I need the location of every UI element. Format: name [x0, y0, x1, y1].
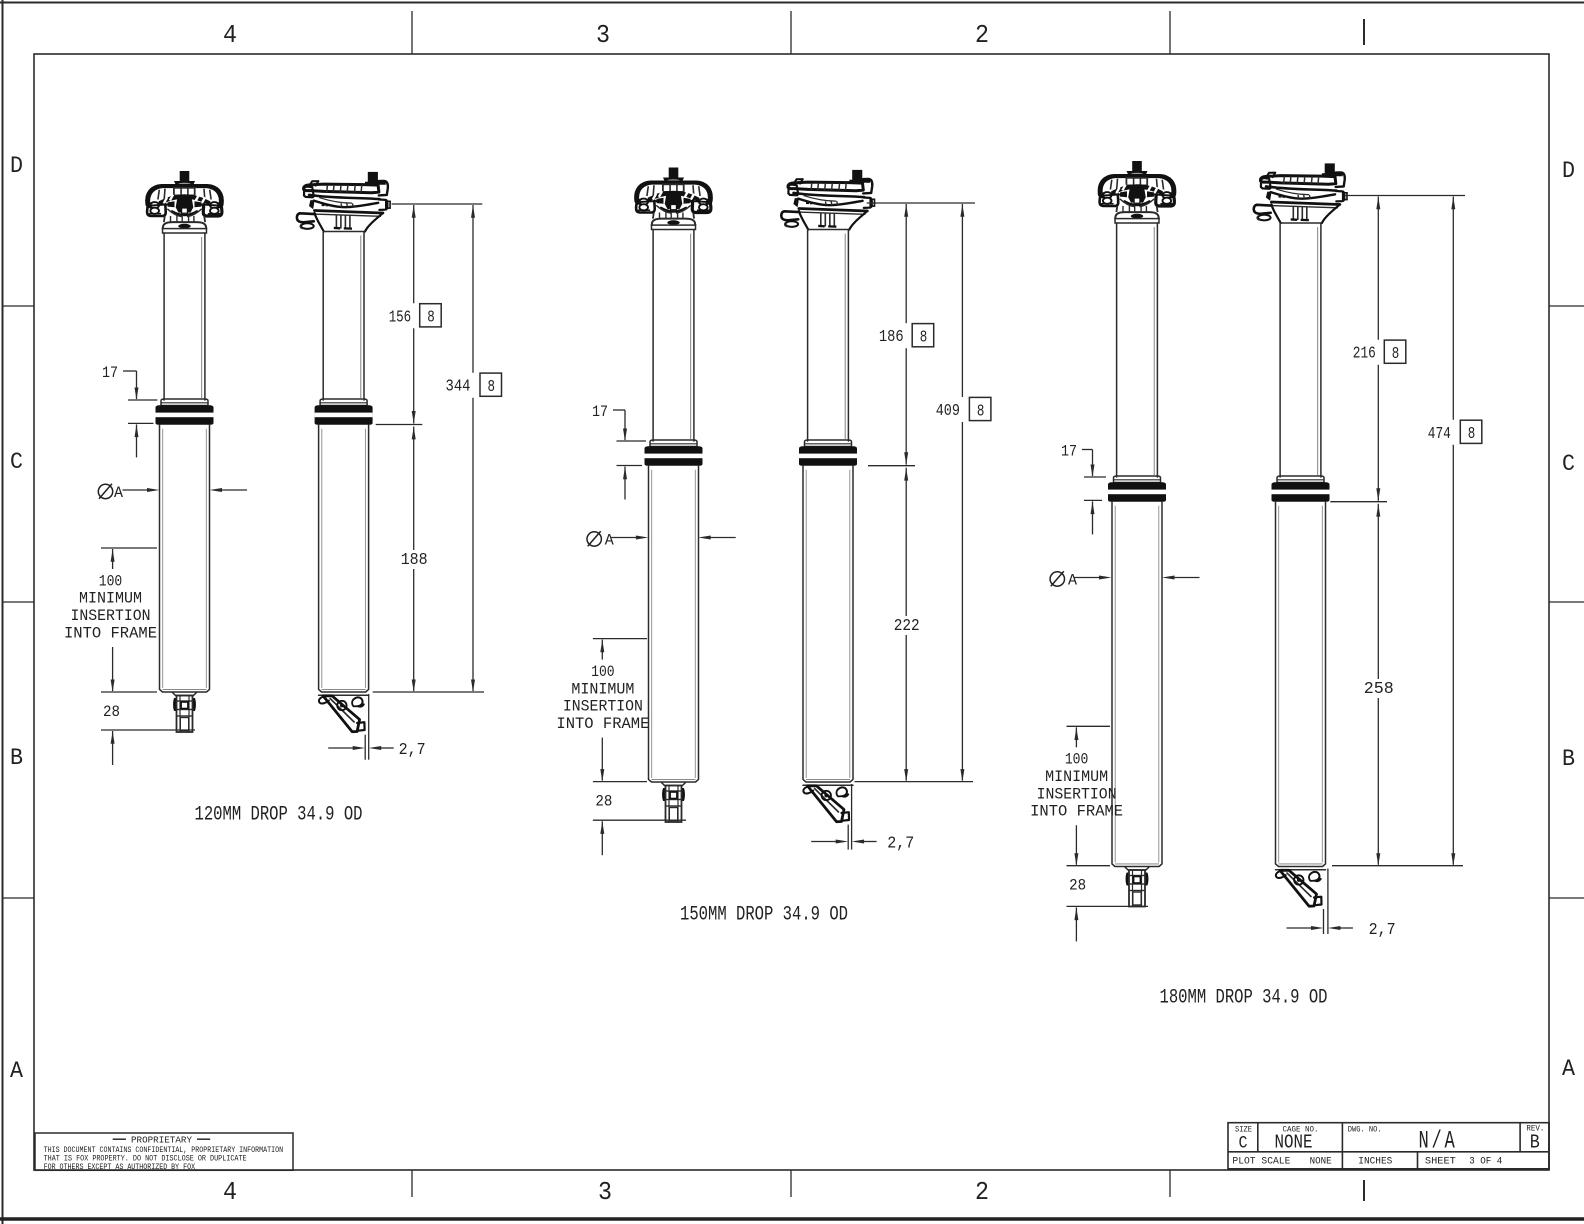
svg-text:100: 100 [1065, 751, 1089, 769]
svg-text:2: 2 [975, 1177, 989, 1207]
svg-text:150MM DROP 34.9 OD: 150MM DROP 34.9 OD [680, 904, 848, 927]
svg-text:17: 17 [1061, 443, 1077, 461]
svg-text:PROPRIETARY: PROPRIETARY [131, 1135, 192, 1146]
svg-text:3: 3 [598, 1177, 612, 1207]
svg-text:A: A [605, 532, 615, 550]
svg-text:8: 8 [427, 308, 435, 327]
svg-text:180MM DROP 34.9 OD: 180MM DROP 34.9 OD [1160, 987, 1328, 1010]
svg-text:3 OF 4: 3 OF 4 [1469, 1156, 1502, 1168]
svg-text:INTO FRAME: INTO FRAME [556, 715, 649, 733]
svg-text:17: 17 [102, 364, 118, 382]
svg-text:INSERTION: INSERTION [71, 607, 151, 625]
svg-text:120MM DROP 34.9 OD: 120MM DROP 34.9 OD [195, 804, 363, 827]
svg-text:PLOT SCALE: PLOT SCALE [1232, 1156, 1290, 1168]
svg-text:INSERTION: INSERTION [563, 698, 643, 716]
svg-text:28: 28 [103, 703, 120, 721]
svg-text:NONE: NONE [1310, 1156, 1332, 1168]
svg-text:100: 100 [591, 663, 615, 681]
svg-text:INSERTION: INSERTION [1037, 785, 1117, 803]
svg-text:222: 222 [894, 616, 920, 635]
svg-text:4: 4 [223, 1177, 237, 1207]
svg-text:188: 188 [401, 550, 428, 569]
svg-text:C: C [10, 449, 23, 475]
svg-text:3: 3 [596, 20, 610, 50]
svg-text:28: 28 [1069, 877, 1086, 895]
svg-text:DWG. NO.: DWG. NO. [1348, 1125, 1382, 1135]
svg-text:156: 156 [389, 307, 412, 326]
svg-text:D: D [10, 153, 23, 179]
svg-text:MINIMUM: MINIMUM [1045, 768, 1108, 786]
svg-text:N/A: N/A [1419, 1127, 1458, 1156]
svg-text:8: 8 [1468, 424, 1476, 443]
svg-text:A: A [1068, 572, 1078, 590]
svg-text:D: D [1562, 158, 1575, 184]
svg-text:MINIMUM: MINIMUM [571, 680, 634, 698]
svg-text:B: B [1530, 1132, 1540, 1154]
svg-text:2,7: 2,7 [887, 834, 914, 853]
svg-text:4: 4 [223, 20, 237, 50]
svg-text:186: 186 [879, 327, 904, 346]
svg-text:2,7: 2,7 [399, 740, 426, 759]
svg-text:2: 2 [975, 20, 989, 50]
svg-text:409: 409 [936, 401, 960, 420]
svg-text:344: 344 [446, 377, 471, 396]
svg-text:FOR OTHERS EXCEPT AS AUTHORIZE: FOR OTHERS EXCEPT AS AUTHORIZED BY FOX [44, 1163, 196, 1172]
svg-text:C: C [1562, 451, 1575, 477]
svg-text:2,7: 2,7 [1369, 920, 1396, 939]
svg-text:INTO FRAME: INTO FRAME [1030, 803, 1123, 821]
svg-text:A: A [10, 1058, 23, 1084]
svg-text:8: 8 [488, 377, 496, 396]
svg-text:B: B [1562, 746, 1575, 772]
svg-text:8: 8 [1392, 344, 1400, 363]
svg-text:8: 8 [920, 328, 928, 347]
svg-text:MINIMUM: MINIMUM [79, 590, 142, 608]
svg-text:INCHES: INCHES [1358, 1156, 1392, 1168]
svg-text:A: A [114, 484, 124, 502]
svg-text:A: A [1562, 1056, 1575, 1082]
svg-text:NONE: NONE [1275, 1132, 1313, 1154]
svg-text:100: 100 [99, 572, 123, 590]
svg-text:INTO FRAME: INTO FRAME [64, 624, 157, 642]
svg-text:17: 17 [592, 403, 608, 421]
svg-text:SHEET: SHEET [1425, 1156, 1456, 1168]
svg-text:B: B [10, 745, 23, 771]
svg-text:258: 258 [1364, 679, 1394, 698]
svg-text:28: 28 [595, 793, 612, 811]
svg-text:216: 216 [1353, 344, 1376, 363]
svg-text:474: 474 [1428, 424, 1451, 443]
svg-text:8: 8 [977, 401, 985, 420]
svg-text:C: C [1239, 1134, 1248, 1154]
